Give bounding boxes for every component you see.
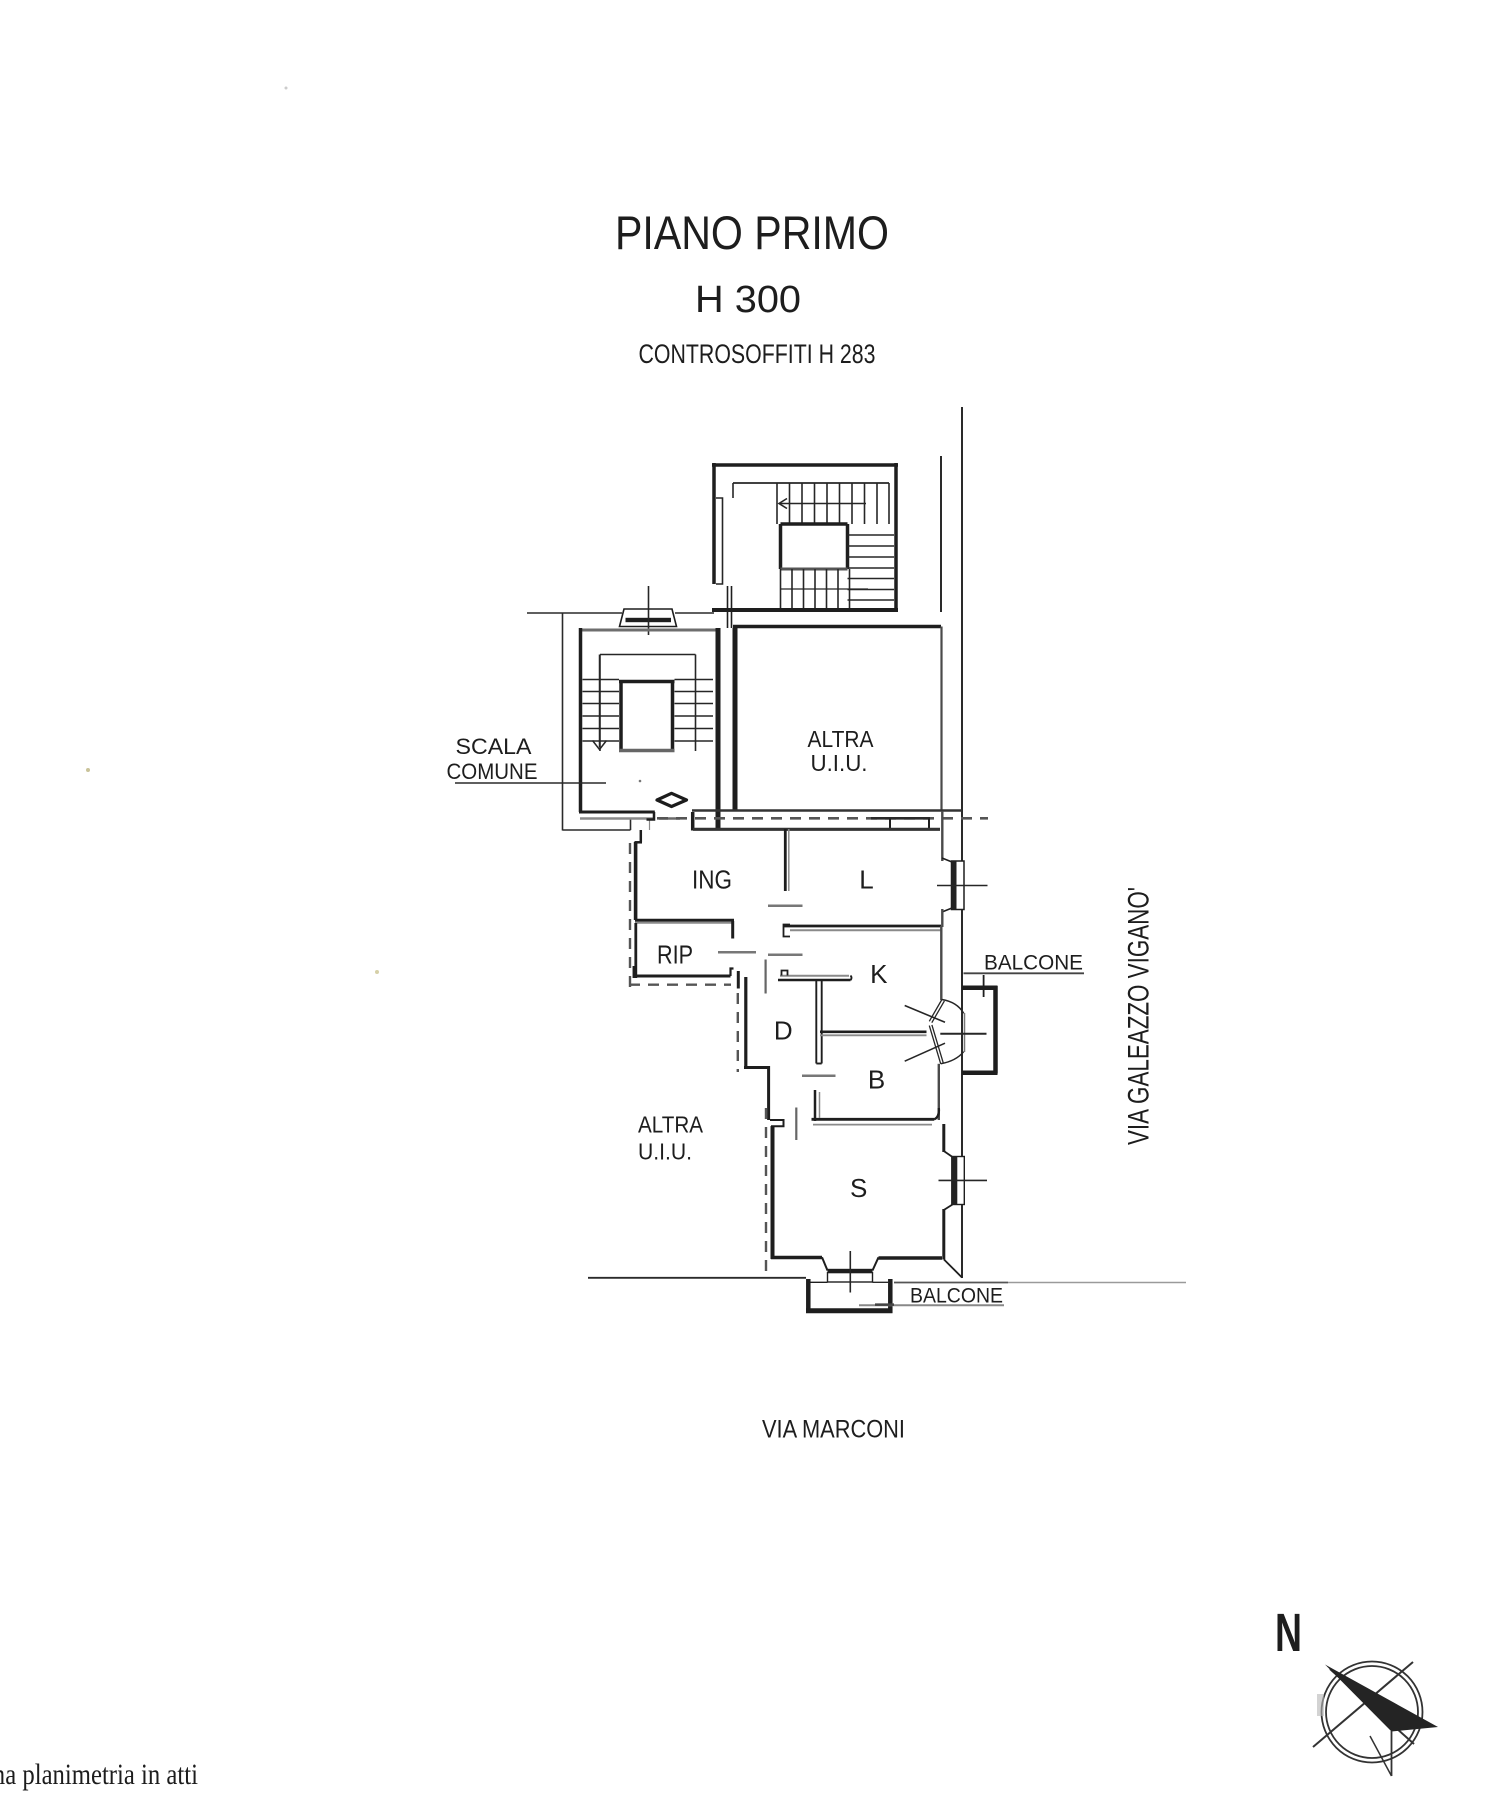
svg-text:H 300: H 300 — [695, 279, 801, 321]
svg-text:D: D — [774, 1016, 793, 1046]
svg-text:U.I.U.: U.I.U. — [811, 750, 868, 776]
svg-text:BALCONE: BALCONE — [984, 951, 1083, 975]
svg-text:RIP: RIP — [657, 940, 693, 970]
svg-text:K: K — [870, 959, 888, 989]
svg-text:B: B — [868, 1065, 885, 1095]
svg-text:SCALA: SCALA — [456, 734, 532, 759]
svg-text:VIA MARCONI: VIA MARCONI — [762, 1416, 905, 1444]
svg-text:ma planimetria in atti: ma planimetria in atti — [0, 1759, 198, 1791]
svg-text:VIA GALEAZZO VIGANO': VIA GALEAZZO VIGANO' — [1123, 887, 1156, 1145]
svg-text:N: N — [1275, 1603, 1302, 1663]
svg-text:L: L — [859, 865, 873, 895]
svg-text:PIANO PRIMO: PIANO PRIMO — [615, 206, 889, 259]
svg-text:ALTRA: ALTRA — [638, 1112, 703, 1138]
svg-text:COMUNE: COMUNE — [447, 759, 538, 784]
svg-text:ING: ING — [692, 865, 732, 895]
svg-text:U.I.U.: U.I.U. — [638, 1139, 692, 1165]
svg-text:ALTRA: ALTRA — [808, 726, 875, 752]
svg-text:CONTROSOFFITI H 283: CONTROSOFFITI H 283 — [639, 339, 876, 369]
svg-text:BALCONE: BALCONE — [910, 1284, 1003, 1308]
svg-text:S: S — [850, 1173, 867, 1203]
